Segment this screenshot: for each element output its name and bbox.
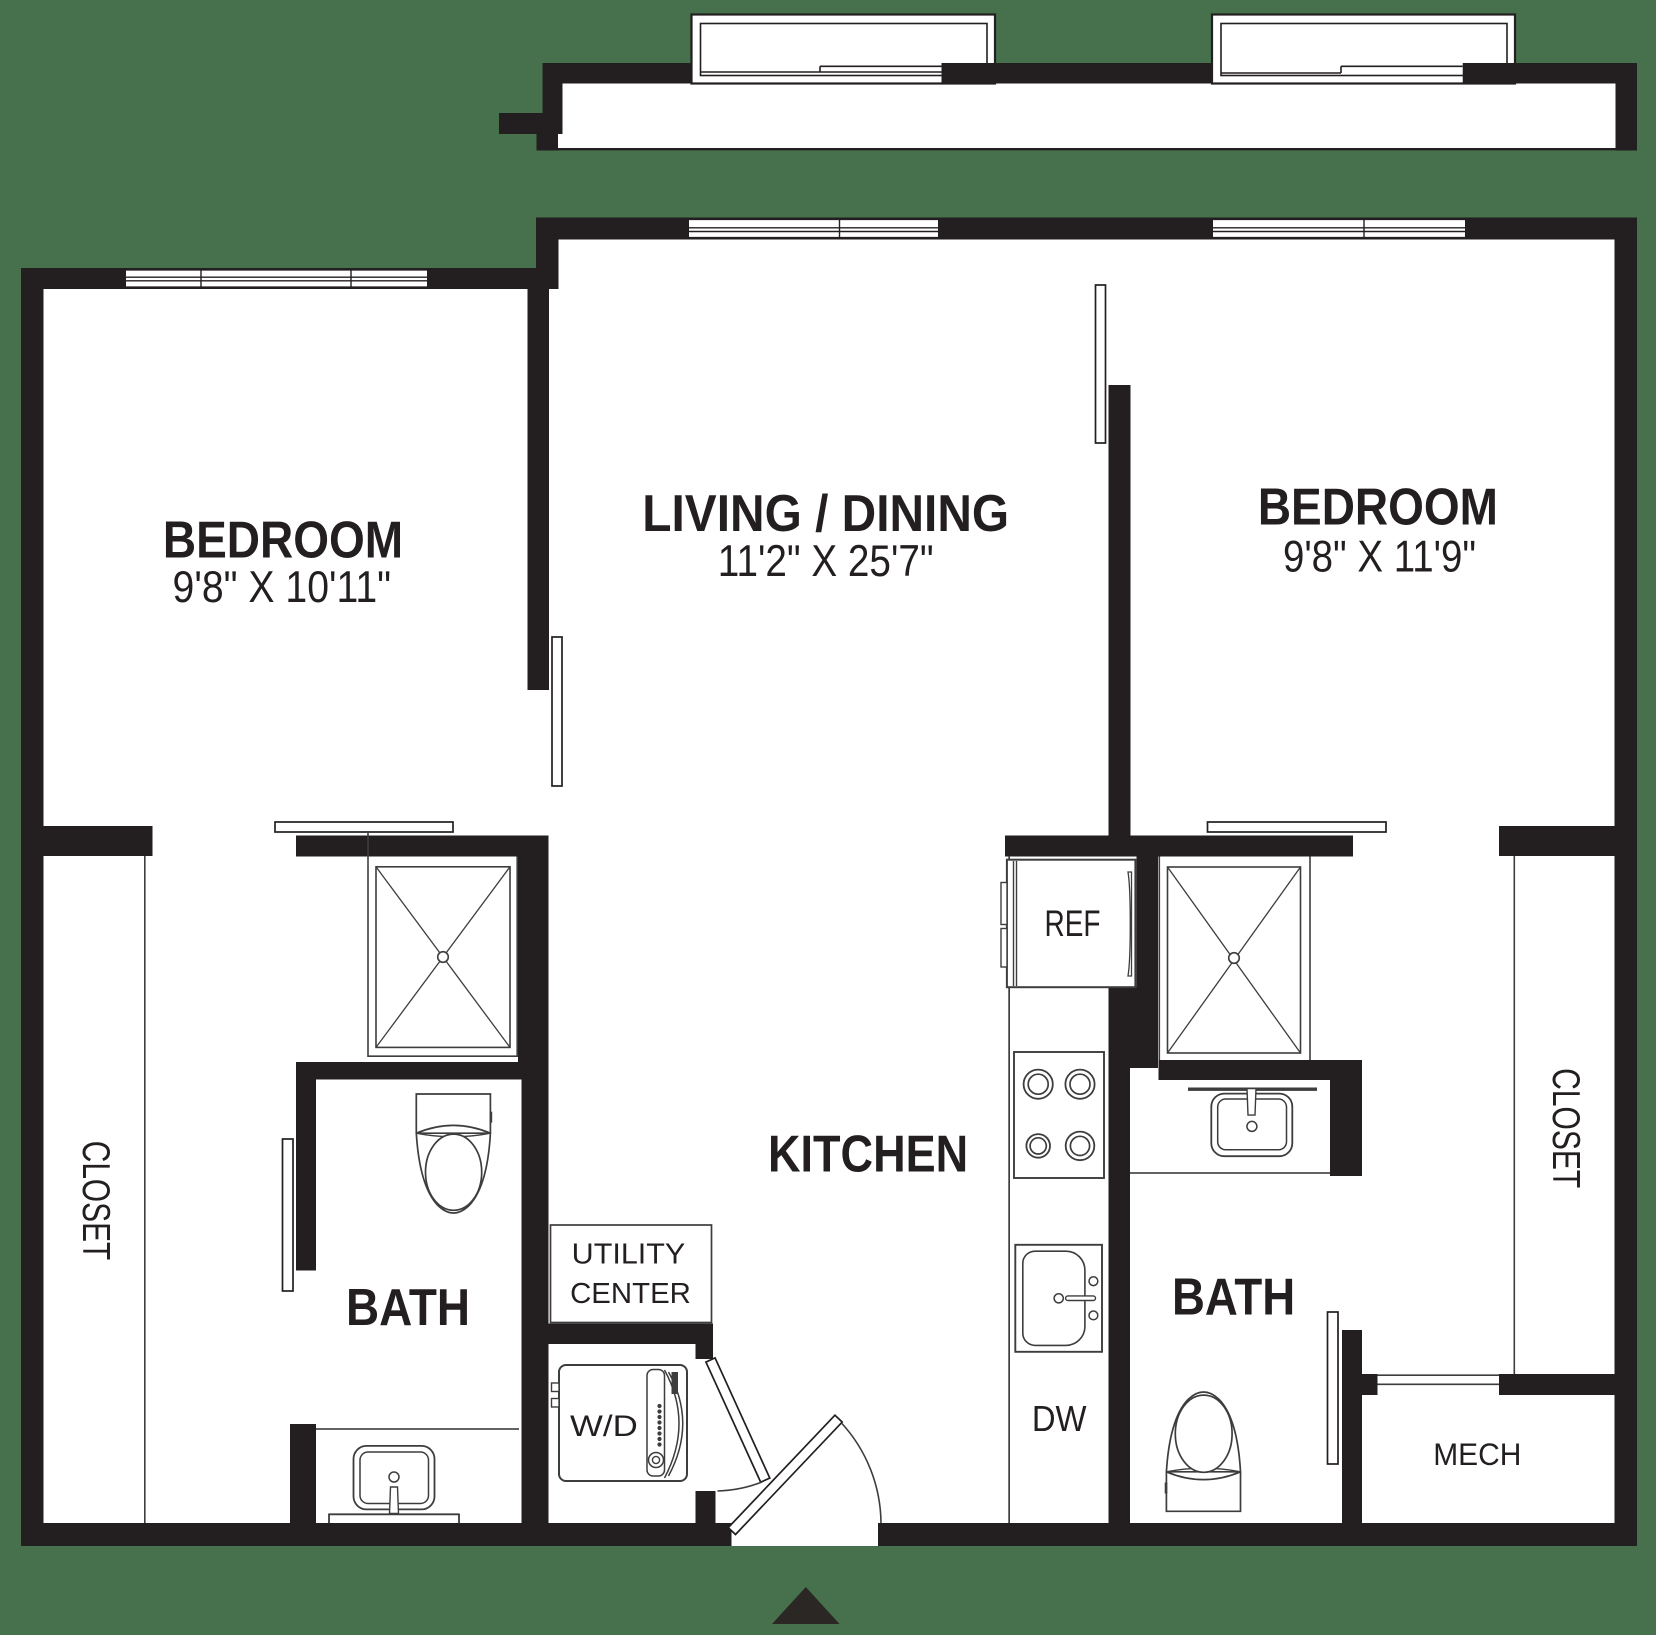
svg-text:UTILITY: UTILITY (572, 1238, 686, 1270)
svg-text:DW: DW (1032, 1398, 1087, 1439)
svg-text:MECH: MECH (1433, 1437, 1521, 1472)
svg-text:REF: REF (1045, 902, 1101, 944)
svg-text:W/D: W/D (570, 1410, 638, 1443)
svg-text:BATH: BATH (346, 1279, 470, 1337)
svg-text:CLOSET: CLOSET (74, 1141, 117, 1261)
svg-text:9'8" X 10'11": 9'8" X 10'11" (173, 563, 392, 612)
svg-text:KITCHEN: KITCHEN (768, 1126, 968, 1184)
svg-text:CENTER: CENTER (570, 1278, 691, 1310)
svg-text:BEDROOM: BEDROOM (163, 511, 403, 569)
svg-text:BEDROOM: BEDROOM (1258, 478, 1498, 536)
svg-text:LIVING / DINING: LIVING / DINING (642, 485, 1009, 543)
svg-text:BATH: BATH (1172, 1269, 1295, 1327)
svg-text:CLOSET: CLOSET (1544, 1068, 1587, 1188)
svg-text:11'2" X 25'7": 11'2" X 25'7" (718, 537, 934, 586)
svg-text:9'8" X 11'9": 9'8" X 11'9" (1283, 532, 1476, 581)
